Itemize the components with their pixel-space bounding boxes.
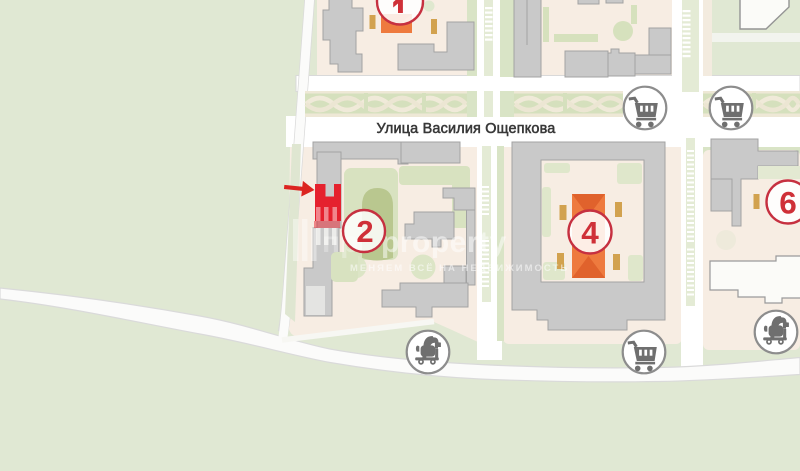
svg-text:property: property <box>381 226 507 259</box>
svg-text:4: 4 <box>581 215 599 251</box>
svg-text:Улица Василия Ощепкова: Улица Василия Ощепкова <box>377 121 556 137</box>
svg-text:6: 6 <box>779 185 797 221</box>
svg-text:2: 2 <box>356 214 373 249</box>
svg-text:МЕНЯЕМ ВСЁ НА НЕДВИЖИМОСТЬ: МЕНЯЕМ ВСЁ НА НЕДВИЖИМОСТЬ <box>350 263 569 274</box>
